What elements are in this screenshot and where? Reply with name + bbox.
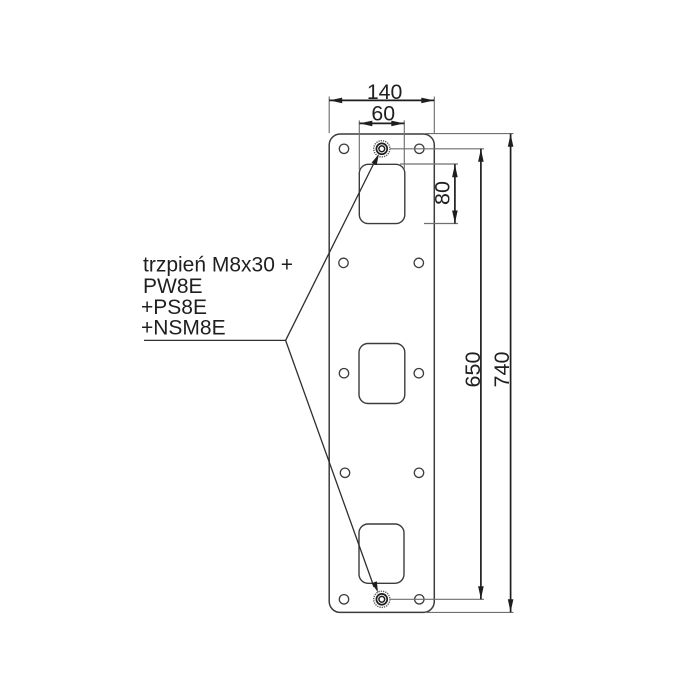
svg-text:140: 140	[367, 80, 403, 104]
svg-text:80: 80	[431, 181, 455, 205]
svg-text:PW8E: PW8E	[143, 275, 203, 298]
svg-text:+NSM8E: +NSM8E	[141, 316, 226, 339]
svg-text:60: 60	[371, 102, 395, 126]
svg-text:trzpień M8x30 +: trzpień M8x30 +	[143, 254, 293, 277]
svg-text:650: 650	[461, 352, 485, 388]
svg-text:740: 740	[490, 352, 514, 388]
